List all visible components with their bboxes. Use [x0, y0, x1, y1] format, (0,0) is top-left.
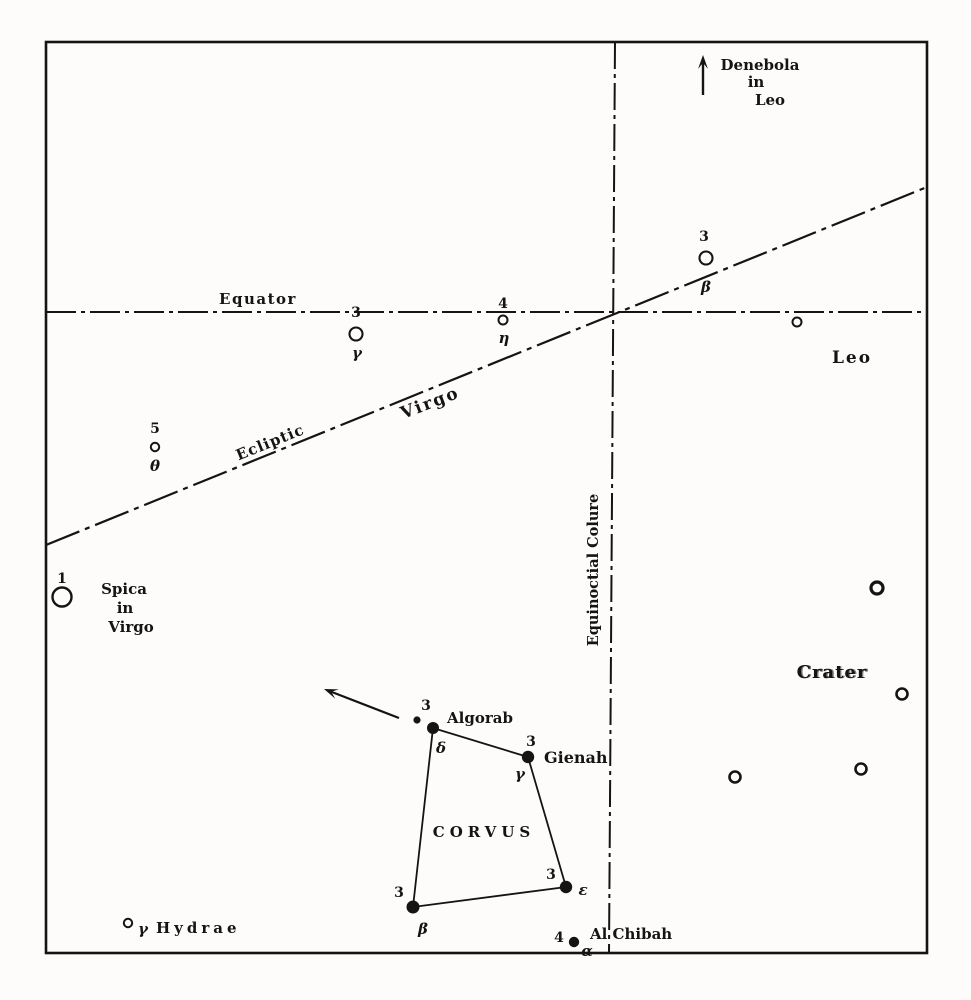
- beta-corvi-magnitude: 3: [394, 885, 404, 901]
- spica-label-line1: Spica: [101, 580, 147, 598]
- delta-corvi-algorab-star: [427, 722, 439, 734]
- denebola-label-line3: Leo: [755, 91, 785, 109]
- star-chart-figure: DenebolainLeo3βEquator3γ4ηLeoVirgoEclipt…: [0, 0, 971, 1000]
- beta-virginis-magnitude: 3: [699, 229, 709, 245]
- gienah-name: Gienah: [544, 748, 608, 767]
- algorab-name: Algorab: [446, 709, 513, 727]
- gamma-corvi-gienah-star: [522, 751, 534, 763]
- eta-virginis-star: [499, 316, 508, 325]
- leo-unnamed-star: [793, 318, 802, 327]
- beta-corvi-letter: β: [417, 920, 428, 938]
- crater-star-4: [730, 772, 741, 783]
- crater-label-smudge: Crater: [798, 662, 869, 683]
- equator-label: Equator: [219, 290, 297, 308]
- scanned-book-page: DenebolainLeo3βEquator3γ4ηLeoVirgoEclipt…: [0, 0, 971, 1000]
- crater-star-2: [897, 689, 908, 700]
- gamma-hydrae-name: Hydrae: [156, 919, 241, 937]
- crater-star-1: [871, 582, 883, 594]
- delta-corvi-letter: δ: [435, 739, 446, 757]
- gamma-hydrae-letter: γ: [138, 920, 149, 938]
- gamma-virginis-magnitude: 3: [351, 305, 361, 321]
- gamma-corvi-letter: γ: [515, 765, 526, 783]
- alchibah-name: Al Chibah: [589, 925, 672, 943]
- algorab-magnitude: 3: [421, 698, 431, 714]
- algorab-companion-star: [413, 716, 420, 723]
- alpha-corvi-alchibah-star: [569, 937, 579, 947]
- spica-magnitude: 1: [57, 571, 67, 587]
- gamma-virginis-letter: γ: [352, 344, 363, 362]
- corvus-label: CORVUS: [433, 823, 536, 841]
- gienah-magnitude: 3: [526, 734, 536, 750]
- epsilon-corvi-magnitude: 3: [546, 867, 556, 883]
- alpha-corvi-letter: α: [581, 942, 593, 960]
- equinoctial-colure-label: Equinoctial Colure: [585, 494, 602, 647]
- gamma-virginis-star: [350, 328, 363, 341]
- crater-star-3: [856, 764, 867, 775]
- alchibah-magnitude: 4: [554, 930, 564, 946]
- spica-label-line3: Virgo: [107, 618, 153, 636]
- gamma-hydrae-star: [124, 919, 132, 927]
- beta-virginis-star: [700, 252, 713, 265]
- spica-label-line2: in: [117, 599, 134, 617]
- beta-virginis-letter: β: [700, 278, 711, 296]
- beta-corvi-star: [407, 901, 420, 914]
- eta-virginis-magnitude: 4: [498, 296, 508, 312]
- theta-virginis-magnitude: 5: [150, 421, 160, 437]
- denebola-label-line2: in: [748, 73, 765, 91]
- theta-virginis-star: [151, 443, 159, 451]
- epsilon-corvi-letter: ε: [578, 881, 587, 899]
- denebola-label-line1: Denebola: [721, 56, 800, 74]
- paper-background: [0, 0, 971, 1000]
- epsilon-corvi-star: [560, 881, 572, 893]
- spica-star: [53, 588, 72, 607]
- eta-virginis-letter: η: [499, 329, 510, 347]
- leo-label: Leo: [832, 348, 872, 368]
- theta-virginis-letter: θ: [150, 457, 160, 475]
